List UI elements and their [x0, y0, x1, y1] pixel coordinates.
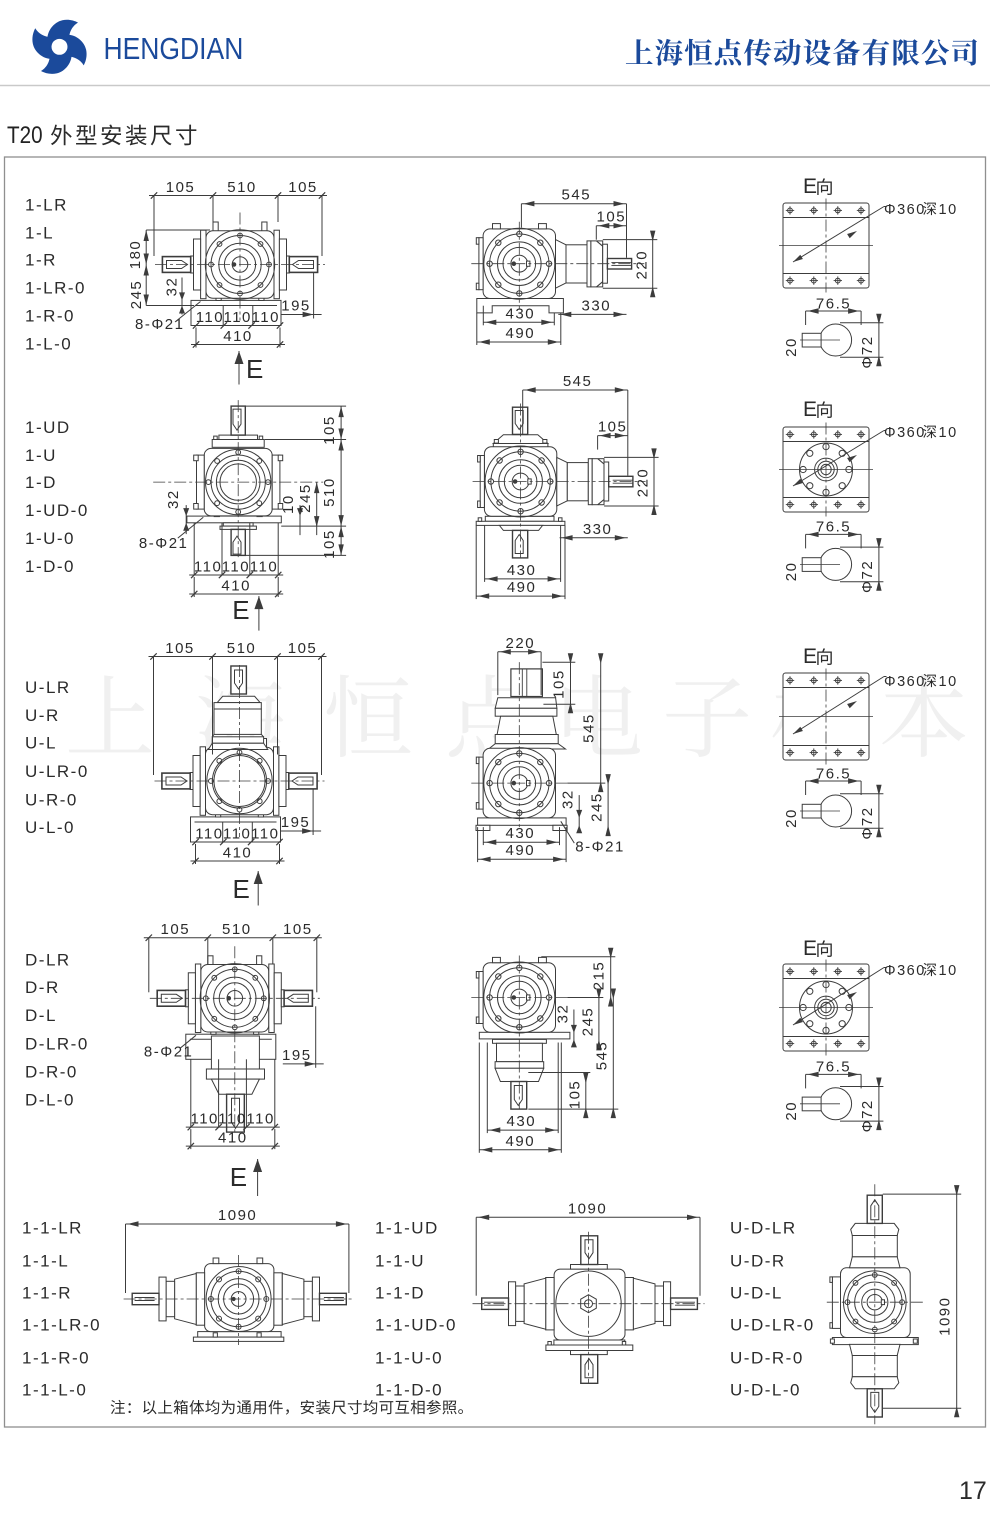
svg-text:8-Φ21: 8-Φ21 [139, 535, 189, 552]
svg-text:220: 220 [635, 468, 652, 498]
svg-text:105: 105 [321, 529, 338, 559]
svg-text:545: 545 [580, 713, 597, 743]
svg-text:32: 32 [559, 789, 576, 809]
svg-text:U-LR-0: U-LR-0 [25, 762, 89, 781]
svg-text:410: 410 [223, 845, 253, 862]
svg-text:32: 32 [554, 1004, 571, 1024]
svg-text:E: E [246, 354, 263, 384]
svg-text:10: 10 [939, 674, 958, 690]
svg-text:1-1-LR-0: 1-1-LR-0 [22, 1316, 101, 1335]
svg-text:U-D-R: U-D-R [730, 1252, 786, 1271]
svg-text:1-1-R: 1-1-R [22, 1284, 72, 1303]
svg-text:510: 510 [227, 179, 257, 196]
svg-text:10: 10 [939, 963, 958, 979]
svg-text:105: 105 [166, 179, 196, 196]
svg-text:U-R-0: U-R-0 [25, 791, 78, 810]
svg-text:180: 180 [127, 240, 144, 270]
svg-text:1090: 1090 [568, 1200, 607, 1217]
svg-text:U-D-LR-0: U-D-LR-0 [730, 1316, 815, 1335]
svg-text:215: 215 [590, 961, 607, 991]
svg-text:Φ360: Φ360 [884, 674, 926, 690]
svg-text:U-LR: U-LR [25, 678, 71, 697]
svg-text:20: 20 [783, 337, 800, 357]
svg-text:U-D-L-0: U-D-L-0 [730, 1381, 801, 1400]
svg-text:Φ72: Φ72 [859, 806, 876, 839]
svg-text:1-UD: 1-UD [25, 418, 71, 437]
svg-text:245: 245 [579, 1007, 596, 1037]
svg-text:D-L-0: D-L-0 [25, 1090, 75, 1109]
svg-text:Φ360: Φ360 [884, 202, 926, 218]
svg-text:110: 110 [251, 826, 279, 843]
svg-text:490: 490 [506, 842, 536, 859]
svg-text:430: 430 [506, 825, 536, 842]
svg-text:1-1-UD-0: 1-1-UD-0 [375, 1316, 457, 1335]
svg-text:U-D-L: U-D-L [730, 1284, 783, 1303]
svg-text:E: E [803, 175, 817, 198]
svg-text:1-1-L-0: 1-1-L-0 [22, 1381, 87, 1400]
svg-text:E: E [803, 937, 817, 960]
svg-text:430: 430 [506, 305, 536, 322]
svg-text:Φ72: Φ72 [859, 335, 876, 368]
svg-text:110: 110 [218, 1111, 246, 1128]
svg-text:D-LR-0: D-LR-0 [25, 1035, 89, 1054]
svg-text:1-1-R-0: 1-1-R-0 [22, 1349, 90, 1368]
svg-text:105: 105 [288, 640, 318, 657]
svg-text:1-1-U-0: 1-1-U-0 [375, 1349, 443, 1368]
svg-text:220: 220 [506, 635, 536, 652]
svg-text:105: 105 [566, 1080, 583, 1110]
svg-text:U-D-LR: U-D-LR [730, 1219, 797, 1238]
svg-text:D-R: D-R [25, 978, 60, 997]
svg-text:Φ360: Φ360 [884, 963, 926, 979]
svg-text:110: 110 [196, 309, 224, 326]
svg-text:1-UD-0: 1-UD-0 [25, 501, 89, 520]
svg-text:245: 245 [297, 483, 314, 513]
svg-text:Φ72: Φ72 [859, 1099, 876, 1132]
svg-text:195: 195 [282, 1047, 312, 1064]
svg-text:110: 110 [223, 826, 251, 843]
svg-text:1-LR: 1-LR [25, 196, 68, 215]
svg-text:76.5: 76.5 [816, 766, 851, 783]
svg-text:110: 110 [194, 559, 222, 576]
svg-text:330: 330 [582, 297, 612, 314]
svg-text:545: 545 [593, 1041, 610, 1071]
svg-text:430: 430 [507, 562, 537, 579]
svg-text:Φ360: Φ360 [884, 425, 926, 441]
svg-text:430: 430 [507, 1113, 537, 1130]
svg-text:105: 105 [550, 669, 567, 699]
svg-text:1090: 1090 [936, 1297, 953, 1336]
svg-text:10: 10 [939, 202, 958, 218]
svg-text:105: 105 [161, 921, 191, 938]
svg-text:510: 510 [222, 921, 252, 938]
svg-text:510: 510 [227, 640, 257, 657]
svg-text:10: 10 [280, 494, 297, 514]
svg-text:490: 490 [507, 579, 537, 596]
svg-text:8-Φ21: 8-Φ21 [575, 838, 625, 855]
svg-text:32: 32 [164, 277, 181, 297]
svg-text:Φ72: Φ72 [859, 560, 876, 593]
svg-text:U-L: U-L [25, 734, 57, 753]
svg-text:E: E [233, 874, 250, 904]
svg-text:1090: 1090 [218, 1207, 257, 1224]
svg-text:1-1-LR: 1-1-LR [22, 1219, 83, 1238]
svg-text:U-R: U-R [25, 706, 60, 725]
svg-text:1-D: 1-D [25, 473, 57, 492]
svg-text:110: 110 [250, 559, 278, 576]
svg-text:110: 110 [246, 1111, 274, 1128]
svg-text:545: 545 [562, 187, 592, 204]
svg-text:410: 410 [223, 328, 253, 345]
svg-text:245: 245 [128, 280, 145, 310]
svg-text:U-D-R-0: U-D-R-0 [730, 1349, 804, 1368]
svg-text:20: 20 [783, 808, 800, 828]
svg-text:105: 105 [165, 640, 195, 657]
svg-text:E: E [803, 645, 817, 668]
svg-text:1-1-U: 1-1-U [375, 1252, 425, 1271]
svg-text:105: 105 [597, 209, 627, 226]
svg-text:1-U-0: 1-U-0 [25, 529, 75, 548]
svg-text:1-R: 1-R [25, 251, 57, 270]
svg-text:E: E [803, 398, 817, 421]
svg-text:1-1-L: 1-1-L [22, 1252, 69, 1271]
svg-text:545: 545 [563, 373, 593, 390]
svg-text:1-1-D: 1-1-D [375, 1284, 425, 1303]
svg-text:1-L-0: 1-L-0 [25, 335, 72, 354]
svg-text:110: 110 [222, 559, 250, 576]
svg-text:1-D-0: 1-D-0 [25, 557, 75, 576]
svg-text:195: 195 [281, 814, 311, 831]
svg-text:8-Φ21: 8-Φ21 [144, 1043, 194, 1060]
svg-text:D-R-0: D-R-0 [25, 1063, 78, 1082]
svg-text:410: 410 [218, 1130, 248, 1147]
svg-text:T20: T20 [7, 122, 43, 149]
svg-text:E: E [232, 595, 249, 625]
svg-text:105: 105 [598, 419, 628, 436]
svg-text:490: 490 [506, 1133, 536, 1150]
svg-text:E: E [230, 1162, 247, 1192]
svg-text:20: 20 [783, 1101, 800, 1121]
svg-text:330: 330 [583, 521, 613, 538]
svg-text:195: 195 [281, 298, 311, 315]
svg-text:110: 110 [195, 826, 223, 843]
svg-text:105: 105 [283, 921, 313, 938]
svg-text:105: 105 [321, 415, 338, 445]
svg-text:8-Φ21: 8-Φ21 [135, 316, 185, 333]
svg-text:D-LR: D-LR [25, 950, 71, 969]
svg-text:32: 32 [165, 489, 182, 509]
svg-text:HENGDIAN: HENGDIAN [104, 32, 244, 66]
svg-text:D-L: D-L [25, 1006, 57, 1025]
svg-text:76.5: 76.5 [816, 519, 851, 536]
svg-text:76.5: 76.5 [816, 296, 851, 313]
svg-text:110: 110 [252, 309, 280, 326]
svg-text:220: 220 [633, 250, 650, 280]
svg-text:1-R-0: 1-R-0 [25, 307, 75, 326]
svg-text:76.5: 76.5 [816, 1059, 851, 1076]
svg-text:110: 110 [223, 309, 251, 326]
svg-text:105: 105 [288, 179, 318, 196]
svg-text:410: 410 [221, 578, 251, 595]
svg-text:1-L: 1-L [25, 224, 54, 243]
svg-text:1-U: 1-U [25, 446, 57, 465]
svg-text:490: 490 [506, 325, 536, 342]
svg-text:U-L-0: U-L-0 [25, 818, 75, 837]
svg-text:245: 245 [588, 792, 605, 822]
svg-text:17: 17 [959, 1477, 987, 1505]
svg-text:20: 20 [783, 562, 800, 582]
svg-text:1-1-D-0: 1-1-D-0 [375, 1381, 443, 1400]
svg-text:10: 10 [939, 425, 958, 441]
svg-text:1-1-UD: 1-1-UD [375, 1219, 439, 1238]
svg-text:110: 110 [190, 1111, 218, 1128]
svg-text:1-LR-0: 1-LR-0 [25, 279, 86, 298]
svg-text:510: 510 [321, 477, 338, 507]
